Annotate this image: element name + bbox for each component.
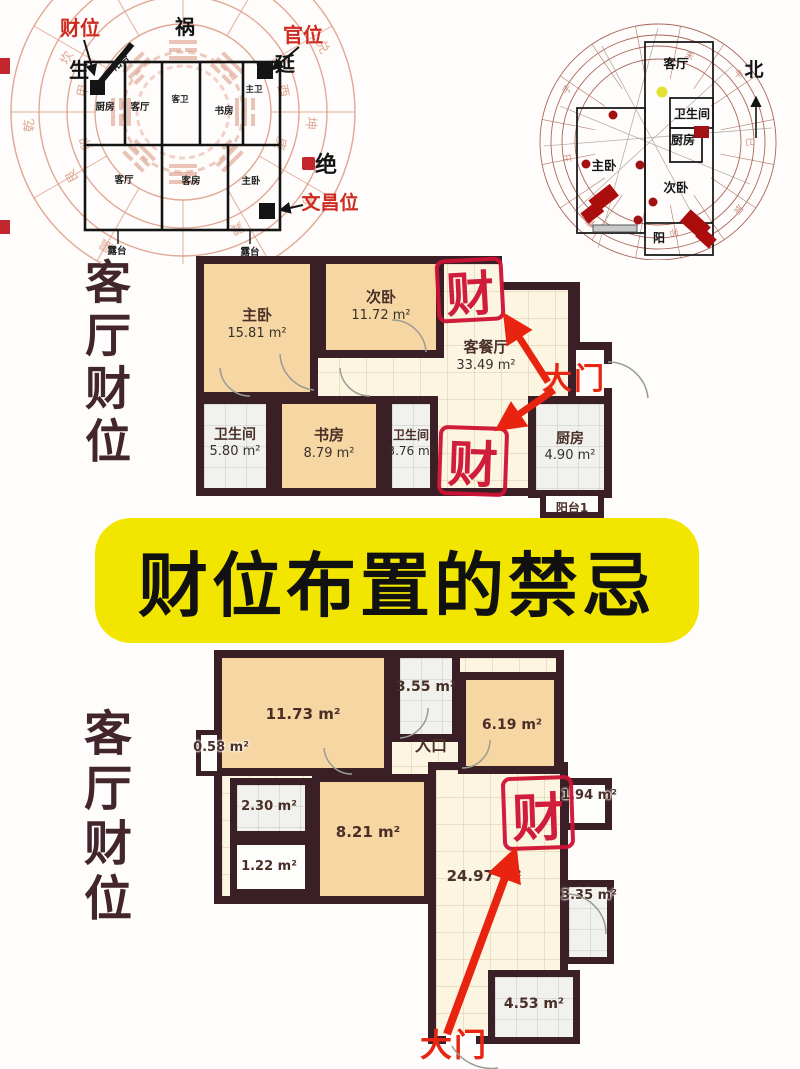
side-caption-bottom: 客厅财位	[68, 708, 138, 948]
compass-rings	[540, 24, 776, 260]
wealth-stamp-3: 财	[501, 775, 576, 851]
room-area: 3.35 m²	[561, 888, 617, 905]
entry-label: 入口	[415, 736, 447, 757]
svg-text:主卧: 主卧	[241, 175, 261, 187]
main-door-label-2: 大门	[420, 1020, 488, 1066]
page-title: 财位布置的禁忌	[138, 530, 656, 631]
svg-text:卫生间: 卫生间	[674, 106, 710, 121]
yan-label: 延	[274, 52, 296, 76]
north-label: 北	[744, 59, 763, 81]
wealth-stamp-1: 财	[434, 256, 505, 323]
room-area: 33.49 m²	[456, 358, 515, 375]
svg-text:次卧: 次卧	[663, 180, 689, 195]
wenchang-label: 文昌位	[301, 191, 358, 214]
svg-text:客房: 客房	[180, 175, 200, 187]
room-area: 0.58 m²	[193, 740, 249, 757]
room-name: 卫生间	[387, 428, 434, 444]
bagua-position-labels: 财位 祸 官位 生 延 绝 文昌位	[60, 15, 359, 214]
svg-text:主卧: 主卧	[591, 158, 617, 173]
svg-text:辰: 辰	[731, 202, 745, 216]
svg-text:巽: 巽	[228, 218, 246, 237]
svg-text:坤: 坤	[302, 116, 318, 130]
room-name: 次卧	[351, 288, 410, 308]
side-caption-top: 客厅财位	[72, 258, 138, 483]
svg-text:丑: 丑	[562, 152, 574, 163]
room-name: 客餐厅	[456, 338, 515, 358]
infographic-canvas: 乾 坎 艮 震 巽 离 坤 兑 甲 卯 庚 酉	[0, 0, 800, 1069]
svg-text:艮: 艮	[63, 166, 82, 185]
huo-label: 祸	[175, 15, 195, 39]
svg-text:巳: 巳	[744, 137, 755, 146]
room-area: 6.19 m²	[482, 716, 542, 734]
svg-text:露台: 露台	[107, 245, 127, 257]
svg-text:客厅: 客厅	[129, 101, 150, 113]
svg-text:乾: 乾	[22, 118, 38, 132]
room-name: 主卧	[227, 306, 286, 326]
room-area: 1.22 m²	[241, 859, 297, 876]
wealth-stamp-2: 财	[437, 425, 509, 497]
wealth-position-label: 财位	[60, 16, 100, 40]
room-area: 8.21 m²	[336, 823, 400, 843]
sheng-label: 生	[69, 58, 89, 82]
svg-text:阳: 阳	[653, 230, 665, 245]
yellow-dot	[657, 87, 668, 98]
room-area: 3.76 m²	[387, 444, 434, 460]
compass-chart: 子 丑 寅 卯 辰 巳 午 未 北 客厅 卫生间 厨房 主卧 次卧	[498, 8, 800, 260]
svg-text:厨房: 厨房	[95, 101, 114, 113]
room-area: 11.73 m²	[266, 705, 341, 725]
svg-text:书房: 书房	[214, 105, 233, 117]
svg-text:厨房: 厨房	[671, 132, 695, 147]
room-area: 15.81 m²	[227, 326, 286, 343]
ring-red-marker	[0, 220, 10, 234]
room-area: 5.80 m²	[210, 444, 261, 461]
room-name: 书房	[304, 426, 355, 446]
official-position-label: 官位	[283, 23, 323, 47]
room-area: 24.97 m²	[447, 867, 522, 887]
svg-text:酉: 酉	[274, 83, 291, 99]
jue-label: 绝	[315, 152, 337, 178]
svg-text:客厅: 客厅	[662, 56, 689, 71]
room-name: 厨房	[545, 430, 596, 448]
plan1-top-notch	[502, 250, 580, 282]
room-area: 8.79 m²	[304, 446, 355, 463]
svg-text:客卫: 客卫	[170, 94, 189, 105]
room-name: 卫生间	[210, 426, 261, 444]
room-area: 2.30 m²	[241, 799, 297, 816]
main-door-label-1: 大门	[542, 354, 606, 398]
ring-red-marker	[0, 58, 10, 74]
svg-text:主卫: 主卫	[245, 84, 263, 95]
bagua-chart: 乾 坎 艮 震 巽 离 坤 兑 甲 卯 庚 酉	[0, 0, 372, 264]
flying-star-lines	[544, 28, 772, 248]
room-name: 阳台1	[556, 501, 588, 517]
room-area: 11.72 m²	[351, 308, 410, 325]
title-banner: 财位布置的禁忌	[95, 518, 699, 643]
svg-text:卯: 卯	[77, 135, 95, 152]
room-area: 4.53 m²	[504, 995, 564, 1013]
jue-red-icon	[302, 157, 315, 170]
room-area: 4.90 m²	[545, 448, 596, 465]
svg-text:卯: 卯	[668, 226, 679, 238]
room-area: 3.55 m²	[396, 678, 456, 696]
svg-text:客厅: 客厅	[113, 174, 134, 186]
